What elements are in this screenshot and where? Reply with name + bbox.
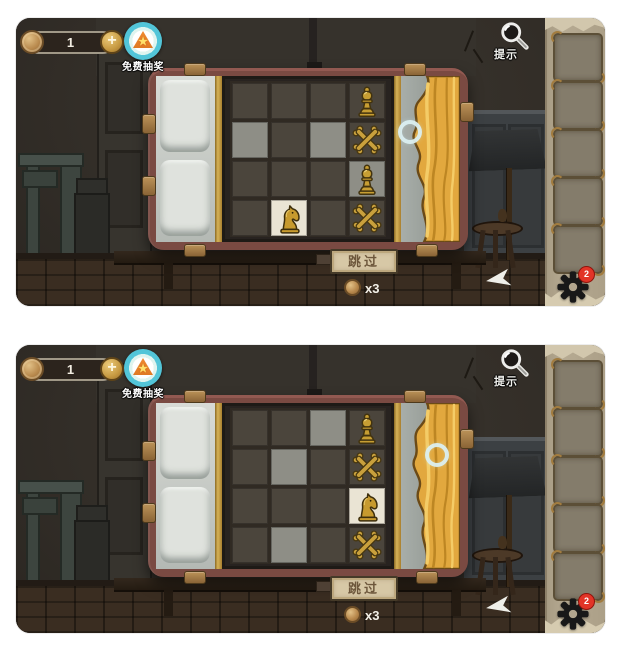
board-cell-r2c0[interactable] [232,161,268,197]
board-cell-r0c0[interactable] [232,83,268,119]
skip-cost-label: x3 [365,281,379,296]
free-lottery-tent-icon: ★ [124,349,162,387]
stool-leg [493,557,498,595]
inventory-panel [545,18,605,306]
board-cell-r1c1[interactable] [271,122,307,158]
inventory-slot-4[interactable] [553,177,603,226]
desk-drawer [22,497,58,515]
pillow [160,160,210,236]
hint-button[interactable]: 提示 [490,347,540,397]
pipe-joint [142,441,156,461]
board-cell-r2c2[interactable] [310,161,346,197]
free-lottery-button[interactable]: ★免费抽奖 [120,22,166,78]
bed-frame-popup [148,395,468,577]
pipe-joint [416,571,438,584]
board-cell-r2c3[interactable] [349,488,385,524]
coin-icon [344,279,361,296]
board-cell-r0c1[interactable] [271,410,307,446]
board-cell-r1c2[interactable] [310,122,346,158]
curtain[interactable] [400,403,460,569]
hint-label: 提示 [494,50,518,61]
board-cell-r3c1[interactable] [271,200,307,236]
pipe-joint [416,244,438,257]
chess-pawn-icon [350,84,384,118]
bedding-mattress [156,403,215,569]
pipe-joint [404,390,426,403]
pipe-joint [142,176,156,196]
board-gold-bar-left [215,403,222,569]
vase [498,536,507,549]
chess-cross-icon [350,201,384,235]
target-ring-cursor [398,120,422,144]
chess-cross-icon [350,123,384,157]
board-cell-r2c0[interactable] [232,488,268,524]
coin-icon [344,606,361,623]
bed-rail-leg [164,590,173,616]
add-coins-button[interactable]: + [100,357,124,381]
inventory-slot-3[interactable] [553,129,603,178]
inventory-slot-2[interactable] [553,81,603,130]
inventory-slot-4[interactable] [553,504,603,553]
coin-icon [20,357,44,381]
wardrobe-inset-panel [105,477,143,555]
floor-planks [16,586,605,633]
screenshot-root: 1+★免费抽奖提示跳过x321+★免费抽奖提示跳过x32 [0,0,621,651]
floor-lamp-shade [467,129,546,172]
vase [498,209,507,222]
curtain[interactable] [400,76,460,242]
lottery-star-icon: ★ [124,364,162,375]
add-coins-button[interactable]: + [100,30,124,54]
chess-cross-icon [350,450,384,484]
coin-count-label: 1 [67,363,74,376]
board-gold-bar-left [215,76,222,242]
lottery-star-icon: ★ [124,37,162,48]
settings-badge: 2 [578,593,595,610]
board-cell-r1c3[interactable] [349,122,385,158]
board-cell-r0c0[interactable] [232,410,268,446]
inventory-slot-2[interactable] [553,408,603,457]
hint-label: 提示 [494,377,518,388]
board-cell-r0c1[interactable] [271,83,307,119]
pipe-joint [142,114,156,134]
pipe-joint [184,244,206,257]
floor-lamp-shade [467,456,546,499]
floor-planks [16,259,605,306]
skip-button[interactable]: 跳过 [330,576,398,601]
board-cell-r3c0[interactable] [232,527,268,563]
board-cell-r3c2[interactable] [310,527,346,563]
board-cell-r3c3[interactable] [349,200,385,236]
board-cell-r3c0[interactable] [232,200,268,236]
inventory-slot-3[interactable] [553,456,603,505]
board-cell-r2c3[interactable] [349,161,385,197]
inventory-slot-1[interactable] [553,360,603,409]
bed-frame-popup [148,68,468,250]
board-cell-r3c3[interactable] [349,527,385,563]
skip-cost: x3 [344,606,379,624]
board-cell-r2c2[interactable] [310,488,346,524]
pipe-joint [184,63,206,76]
free-lottery-button[interactable]: ★免费抽奖 [120,349,166,405]
coin-count-label: 1 [67,36,74,49]
pipe-joint [142,503,156,523]
skip-button[interactable]: 跳过 [330,249,398,274]
bedding-mattress [156,76,215,242]
wardrobe-inset-panel [105,150,143,228]
inventory-slot-1[interactable] [553,33,603,82]
free-lottery-tent-icon: ★ [124,22,162,60]
hint-button[interactable]: 提示 [490,20,540,70]
board-cell-r0c3[interactable] [349,83,385,119]
free-lottery-label: 免费抽奖 [120,62,166,73]
board-cell-r1c3[interactable] [349,449,385,485]
coin-icon [20,30,44,54]
pillow [160,407,210,479]
bed-rail-leg [452,263,461,289]
board-cell-r0c3[interactable] [349,410,385,446]
scene-panel-1: 1+★免费抽奖提示跳过x32 [16,18,605,306]
inventory-panel [545,345,605,633]
board-cell-r1c2[interactable] [310,449,346,485]
board-cell-r0c2[interactable] [310,410,346,446]
settings-badge: 2 [578,266,595,283]
free-lottery-label: 免费抽奖 [120,389,166,400]
pillow [160,487,210,563]
board-cell-r3c2[interactable] [310,200,346,236]
stool-leg [493,230,498,268]
board-cell-r0c2[interactable] [310,83,346,119]
inventory-slot-5[interactable] [553,552,603,601]
board-cell-r2c1[interactable] [271,488,307,524]
chess-grid [230,408,386,564]
desk-drawer [22,170,58,188]
bed-rail-leg [164,263,173,289]
scene-panel-2: 1+★免费抽奖提示跳过x32 [16,345,605,633]
pipe-joint [404,63,426,76]
pipe-joint [184,390,206,403]
board-cell-r3c1[interactable] [271,527,307,563]
pillow [160,80,210,152]
skip-cost: x3 [344,279,379,297]
pipe-joint [460,429,474,449]
board-cell-r2c1[interactable] [271,161,307,197]
chess-cross-icon [350,528,384,562]
chess-knight-icon[interactable] [272,201,306,235]
chess-pawn-icon [350,162,384,196]
pipe-joint [184,571,206,584]
bed-rail-leg [452,590,461,616]
skip-cost-label: x3 [365,608,379,623]
board-cell-r1c1[interactable] [271,449,307,485]
pipe-joint [460,102,474,122]
target-ring-cursor [425,443,449,467]
chess-grid [230,81,386,237]
inventory-slot-5[interactable] [553,225,603,274]
chess-knight-icon[interactable] [350,489,384,523]
chess-pawn-icon [350,411,384,445]
board-cell-r1c0[interactable] [232,122,268,158]
board-cell-r1c0[interactable] [232,449,268,485]
